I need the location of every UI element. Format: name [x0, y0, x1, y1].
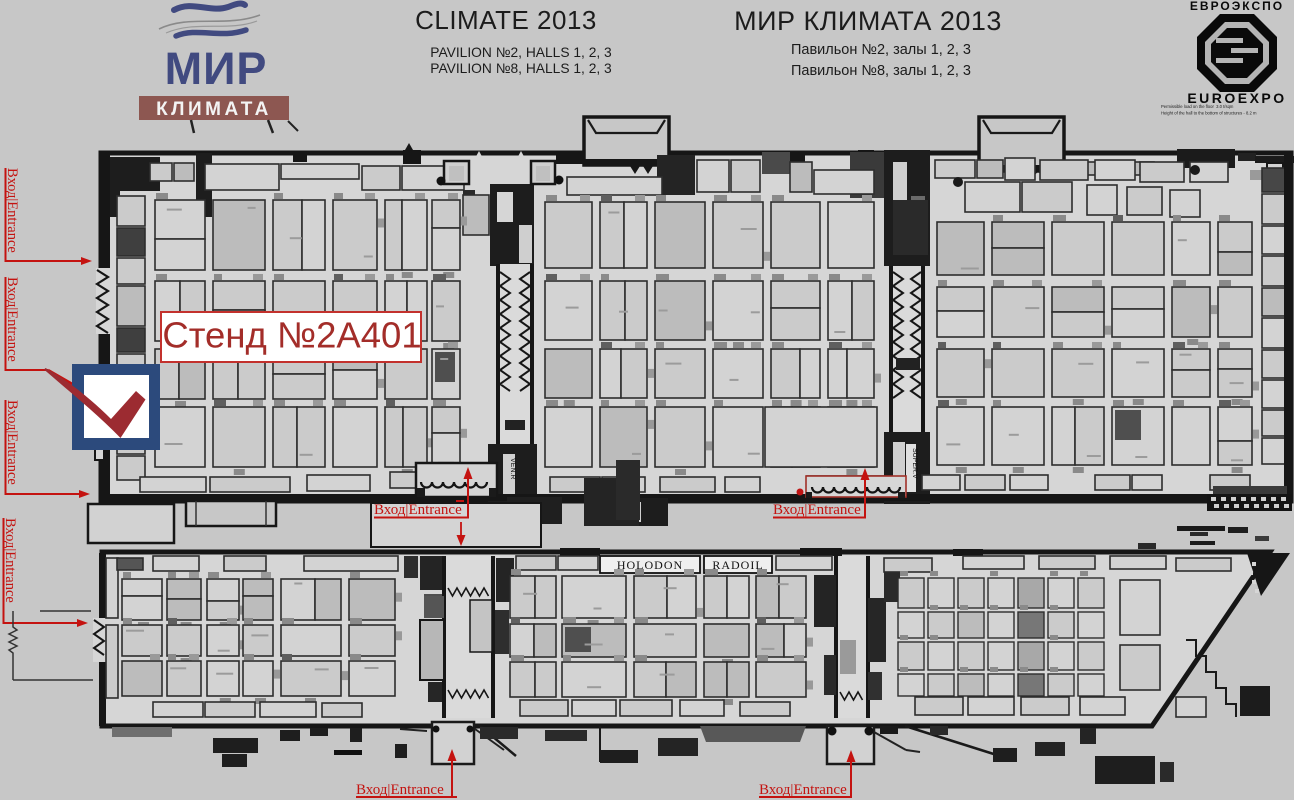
svg-text:Вход|Entrance: Вход|Entrance — [374, 502, 462, 518]
svg-text:VEN.R: VEN.R — [509, 458, 516, 479]
svg-text:Павильон №8, залы 1, 2, 3: Павильон №8, залы 1, 2, 3 — [791, 63, 971, 79]
svg-text:КЛИМАТА: КЛИМАТА — [156, 99, 272, 120]
svg-text:Permissible load on the floor: Permissible load on the floor 3.0 t/sqm — [1161, 104, 1234, 109]
svg-text:HOLODON: HOLODON — [617, 558, 683, 572]
svg-text:МИР: МИР — [165, 43, 268, 94]
svg-text:Вход|Entrance: Вход|Entrance — [773, 502, 861, 518]
svg-text:RADOIL: RADOIL — [712, 558, 763, 572]
svg-text:SUPER.V: SUPER.V — [911, 448, 918, 479]
svg-text:Павильон №2, залы 1, 2, 3: Павильон №2, залы 1, 2, 3 — [791, 42, 971, 58]
svg-text:PAVILION №2, HALLS 1, 2, 3: PAVILION №2, HALLS 1, 2, 3 — [430, 45, 612, 60]
svg-text:PAVILION №8, HALLS 1, 2, 3: PAVILION №8, HALLS 1, 2, 3 — [430, 61, 612, 76]
svg-text:МИР КЛИМАТА 2013: МИР КЛИМАТА 2013 — [734, 6, 1002, 36]
svg-text:Вход|Entrance: Вход|Entrance — [356, 782, 444, 798]
svg-text:Height of the hall to the bott: Height of the hall to the bottom of stru… — [1161, 111, 1257, 116]
svg-text:Стенд №2А401: Стенд №2А401 — [162, 315, 421, 356]
svg-text:CLIMATE 2013: CLIMATE 2013 — [415, 5, 597, 35]
svg-text:ЕВРОЭКСПО: ЕВРОЭКСПО — [1190, 0, 1284, 13]
svg-text:Вход|Entrance: Вход|Entrance — [759, 782, 847, 798]
